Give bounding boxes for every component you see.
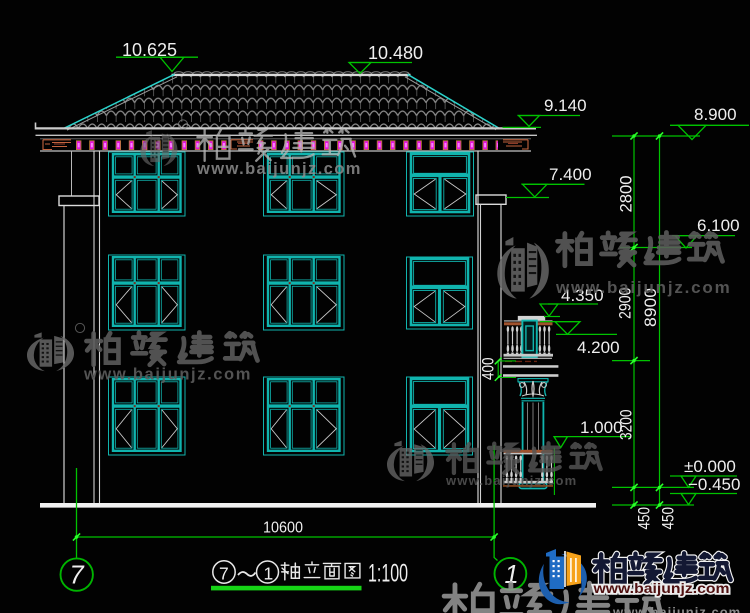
svg-text:10600: 10600 [263,520,303,537]
svg-text:www.baijunjz.com: www.baijunjz.com [83,366,252,384]
svg-text:www.baijunjz.com: www.baijunjz.com [592,581,729,596]
svg-text:7: 7 [70,562,85,590]
svg-text:www.baijunjz.com: www.baijunjz.com [612,605,741,613]
svg-text:www.baijunjz.com: www.baijunjz.com [555,278,732,297]
svg-text:450: 450 [636,507,654,530]
svg-text:1: 1 [264,564,274,584]
svg-text:−0.450: −0.450 [688,475,740,494]
svg-text:450: 450 [660,507,678,530]
svg-text:400: 400 [480,358,498,381]
svg-text:7: 7 [219,564,229,584]
svg-text:1.000: 1.000 [580,418,623,437]
svg-text:2800: 2800 [618,176,636,213]
svg-text:1:100: 1:100 [368,560,408,588]
svg-text:10.480: 10.480 [368,43,423,63]
svg-text:7.400: 7.400 [549,165,592,184]
svg-text:3200: 3200 [618,410,636,441]
svg-text:6.100: 6.100 [697,216,740,235]
svg-text:9.140: 9.140 [544,96,587,115]
svg-text:www.baijunjz.com: www.baijunjz.com [445,473,577,488]
svg-text:4.200: 4.200 [577,338,620,357]
svg-text:±0.000: ±0.000 [684,457,736,476]
svg-text:8.900: 8.900 [694,105,737,124]
svg-text:www.baijunjz.com: www.baijunjz.com [196,160,362,178]
